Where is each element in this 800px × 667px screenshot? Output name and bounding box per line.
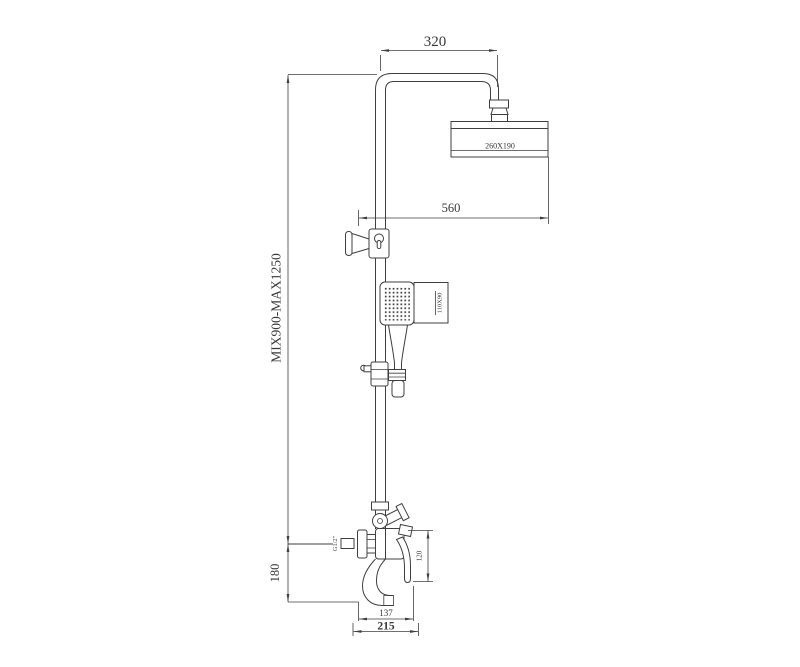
- dimension-560: [359, 157, 549, 226]
- supply-threads: [341, 539, 354, 549]
- label-head-drop: 560: [442, 201, 461, 215]
- spout: [363, 559, 394, 606]
- slider-clamp: [361, 362, 388, 386]
- spray-face-nozzles: [385, 287, 411, 321]
- escutcheon: [358, 530, 368, 558]
- label-inlet-height: 180: [268, 564, 282, 583]
- label-head-size: 260X190: [485, 142, 515, 151]
- shower-arm-connector: [490, 100, 509, 122]
- technical-drawing-canvas: 320 560 260X190 MIX900-MAX1250 180 110X9…: [0, 0, 800, 667]
- overhead-shower-head: [451, 122, 548, 158]
- dimension-height-range: [287, 75, 377, 603]
- label-handle-height: 120: [416, 550, 424, 561]
- label-spout-reach: 137: [379, 608, 393, 618]
- drawing-page: 320 560 260X190 MIX900-MAX1250 180 110X9…: [0, 0, 800, 667]
- label-arm-offset: 320: [424, 34, 447, 50]
- label-body-width: 215: [377, 621, 395, 633]
- label-handshower-size: 110X90: [437, 293, 444, 314]
- label-height-range: MIX900-MAX1250: [269, 253, 284, 363]
- label-thread-size: G1/2": [332, 535, 339, 551]
- hand-shower-connector: [389, 370, 406, 398]
- mixer-assembly: [288, 525, 413, 606]
- wall-bracket: [346, 229, 390, 258]
- mixer-handle: [397, 537, 411, 583]
